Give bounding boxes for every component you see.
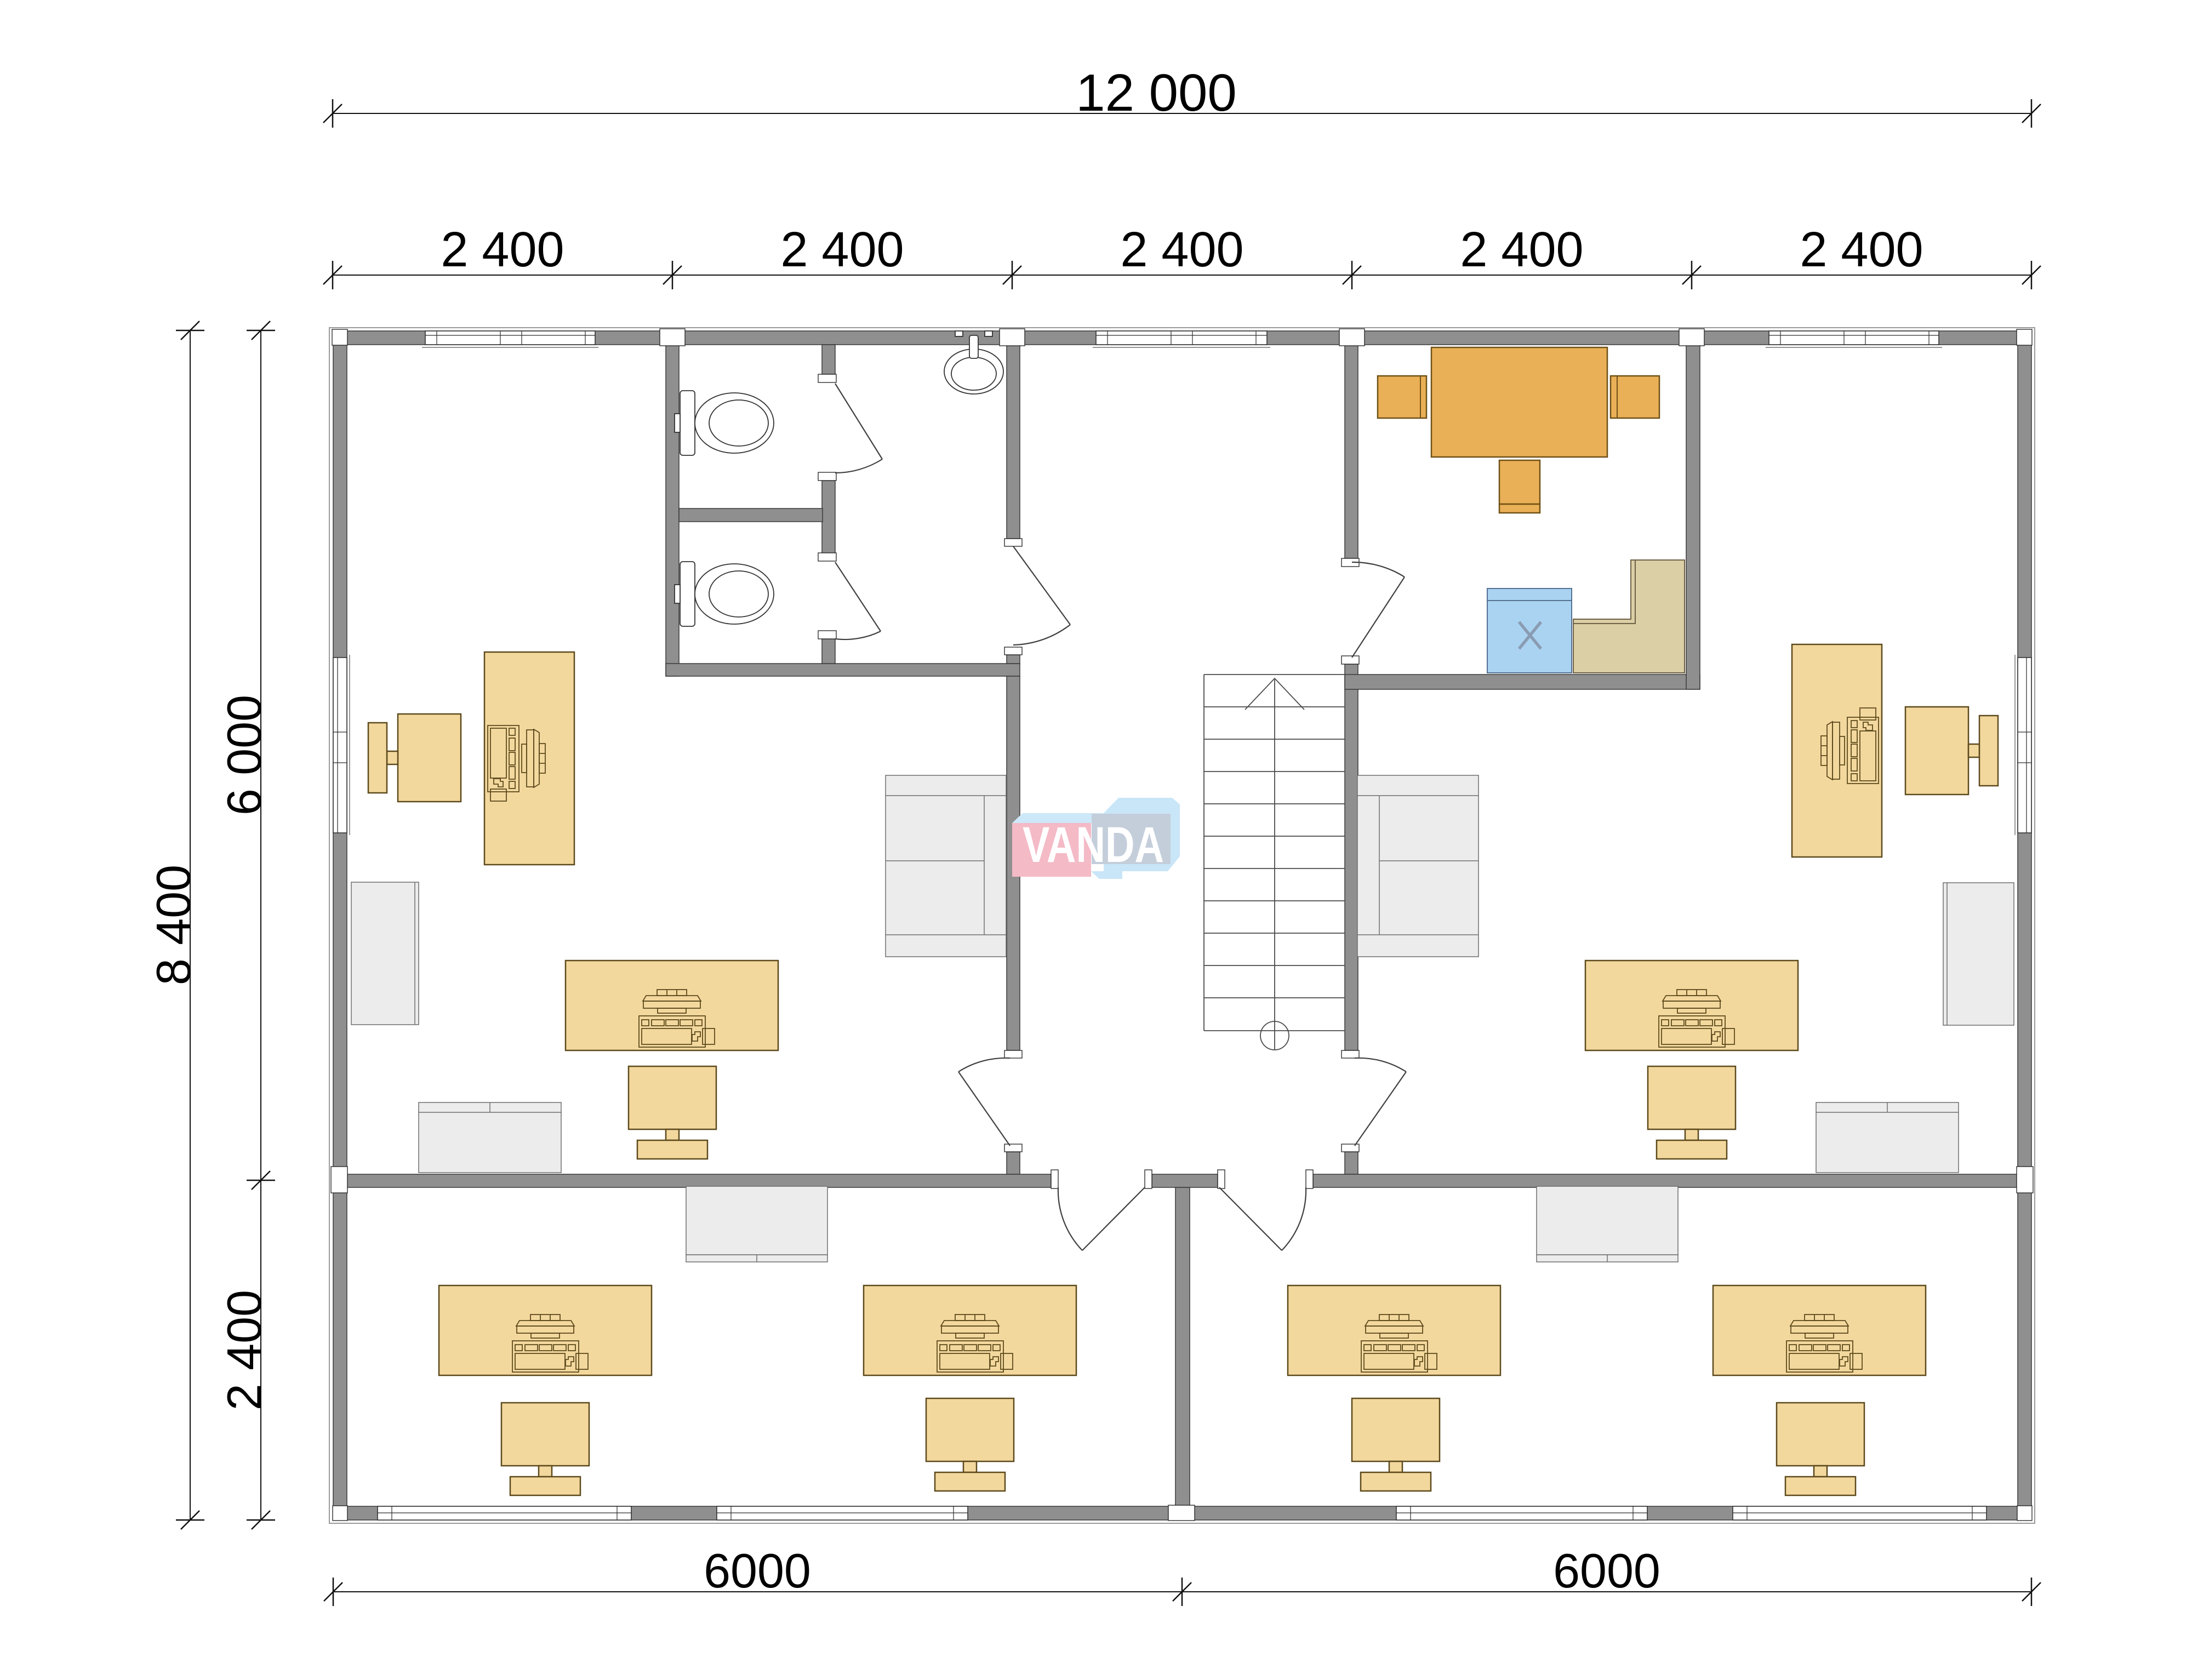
svg-text:2 400: 2 400 bbox=[1460, 222, 1583, 277]
svg-text:2 400: 2 400 bbox=[441, 222, 564, 277]
svg-text:2 400: 2 400 bbox=[780, 222, 904, 277]
svg-text:2 400: 2 400 bbox=[1800, 222, 1923, 277]
svg-text:12 000: 12 000 bbox=[1076, 64, 1237, 122]
svg-text:6000: 6000 bbox=[704, 1544, 811, 1598]
svg-text:2 400: 2 400 bbox=[1120, 222, 1243, 277]
svg-text:8 400: 8 400 bbox=[146, 865, 201, 985]
svg-text:2 400: 2 400 bbox=[217, 1290, 271, 1410]
svg-text:6000: 6000 bbox=[1553, 1544, 1660, 1598]
svg-text:VANDA: VANDA bbox=[1023, 817, 1164, 873]
svg-text:6 000: 6 000 bbox=[217, 695, 271, 815]
